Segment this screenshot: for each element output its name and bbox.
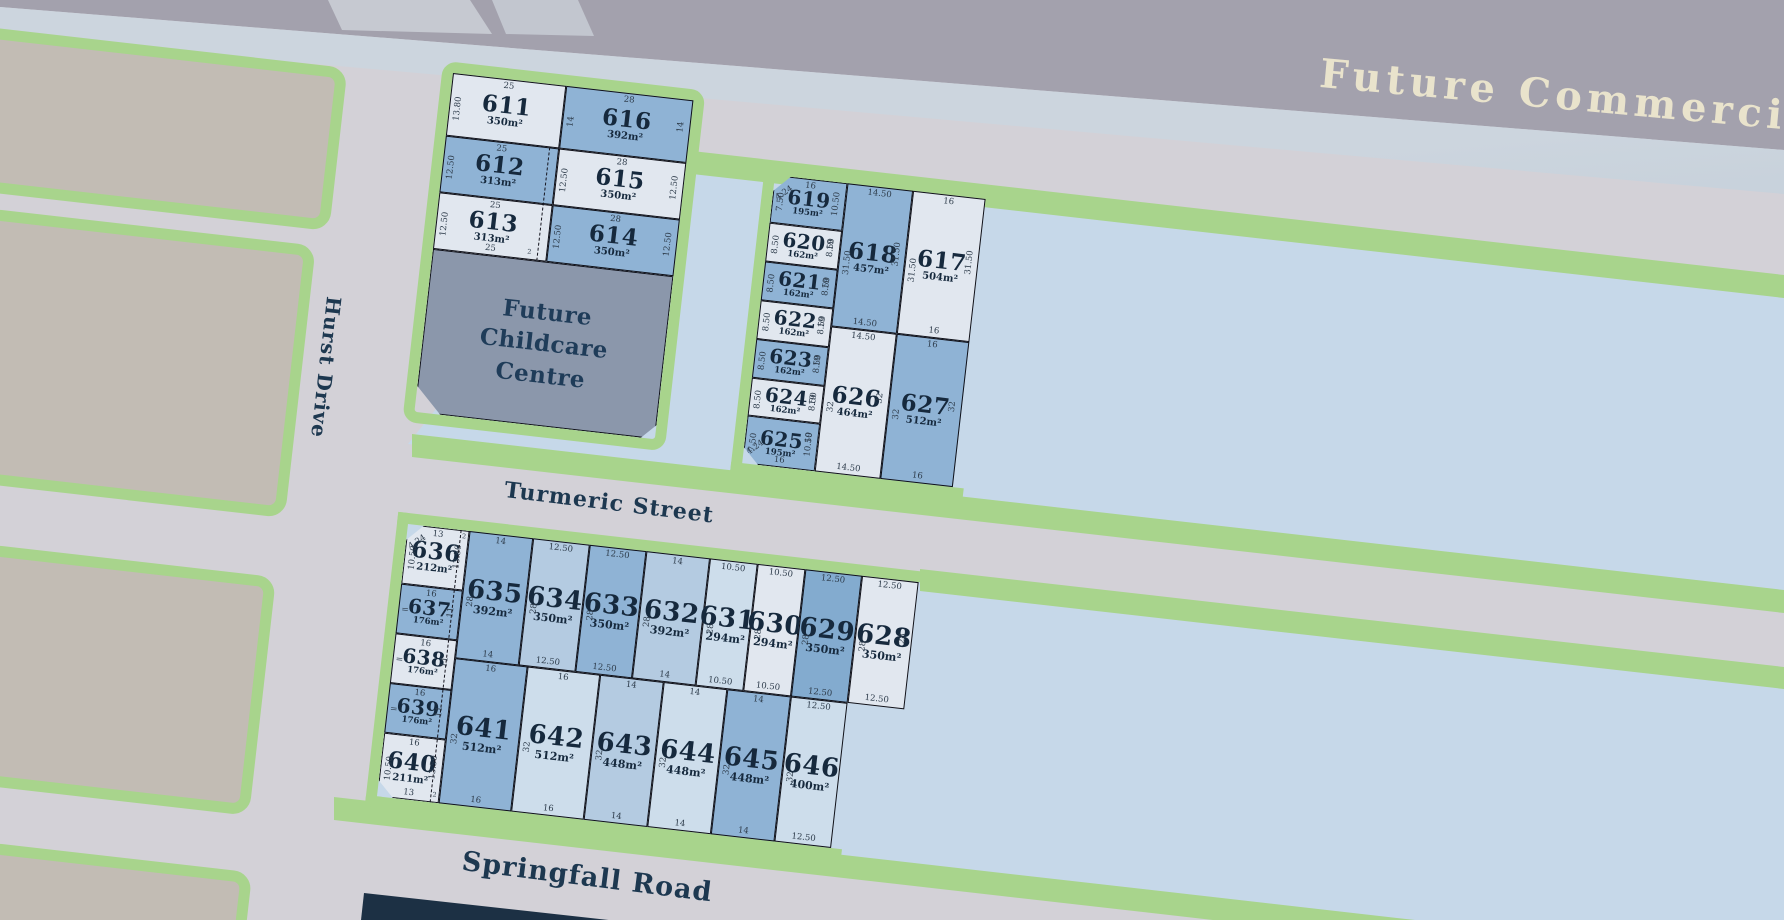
lot-dimension: 14 <box>495 537 507 547</box>
west-parcel-2 <box>0 208 316 518</box>
lot-area: 211m² <box>392 773 429 787</box>
lot-dimension: 16 <box>470 795 482 805</box>
lot-dimension: 13.80 <box>452 96 463 121</box>
lot-dimension: 28 <box>586 610 596 622</box>
lot-dimension: 32 <box>523 741 533 753</box>
lot-dimension: 13 <box>432 530 444 540</box>
equal-boundary-mark: = <box>389 704 398 715</box>
lot-area: 392m² <box>607 129 644 143</box>
lot-dimension: 28 <box>610 215 622 225</box>
lot-area: 448m² <box>602 757 642 772</box>
lot-dimension: 32 <box>659 757 669 769</box>
lot-dimension: 14 <box>482 650 494 660</box>
future-childcare-centre[interactable]: FutureChildcareCentre <box>414 249 673 439</box>
lot-dimension: 12.50 <box>439 212 450 237</box>
lot-dimension: 12.50 <box>877 581 902 592</box>
lot-dimension: 16 <box>773 455 785 465</box>
lot-dimension: 12.50 <box>820 574 845 585</box>
lot-dimension: 16 <box>557 673 569 683</box>
lot-dimension: 14 <box>738 826 750 836</box>
lot-dimension: 8.50 <box>753 389 764 409</box>
lot-dimension: 10.50 <box>768 568 793 579</box>
lot-dimension: 14 <box>566 115 576 127</box>
equal-boundary-mark: = <box>395 655 404 666</box>
equal-boundary-mark: = <box>401 605 410 616</box>
lot-dimension: 8.50 <box>766 274 777 294</box>
lot-dimension: 28 <box>706 623 716 635</box>
lot-area: 448m² <box>729 771 769 786</box>
lot-dimension: 16 <box>928 326 940 336</box>
lot-dimension: 14 <box>672 557 684 567</box>
lot-dimension: 14.50 <box>851 332 876 343</box>
lot-dimension: 19 <box>809 394 819 406</box>
lot-area: 350m² <box>600 189 637 203</box>
lot-dimension: 32 <box>786 771 796 783</box>
lot-dimension: 10.50 <box>831 191 842 216</box>
lot-dimension: 32 <box>826 401 836 413</box>
lot-dimension: 32 <box>948 401 958 413</box>
lot-dimension: 14.50 <box>867 189 892 200</box>
lot-area: 176m² <box>407 666 438 678</box>
lot-dimension: 28 <box>898 633 908 645</box>
lot-dimension: 25 <box>489 201 501 211</box>
lot-dimension: 12.50 <box>808 687 833 698</box>
lot-dimension: 14 <box>689 688 701 698</box>
lot-dimension: 10.50 <box>720 563 745 574</box>
lot-area: 457m² <box>852 263 889 277</box>
lot-dimension: 12.50 <box>669 175 680 200</box>
lot-dimension: 10.50 <box>708 676 733 687</box>
lot-dimension: 14 <box>610 811 622 821</box>
lot-dimension: 19 <box>805 432 815 444</box>
lot-area: 350m² <box>861 648 901 663</box>
lot-dimension: 28 <box>466 596 476 608</box>
lot-dimension: 16 <box>926 340 938 350</box>
lot-dimension: 31.50 <box>842 250 853 275</box>
lot-area: 350m² <box>805 642 845 657</box>
lot-dimension: 14 <box>676 122 686 134</box>
lot-dimension: 14.50 <box>852 317 877 328</box>
easement-width-label: 2 <box>462 532 467 540</box>
lot-dimension: 10.50 <box>755 681 780 692</box>
lot-area: 176m² <box>401 715 432 727</box>
lot-area: 162m² <box>769 405 800 417</box>
lot-dimension: 12.50 <box>662 232 673 257</box>
lot-area: 162m² <box>778 328 809 340</box>
lot-dimension: 12.50 <box>592 662 617 673</box>
lot-dimension: 12.50 <box>535 656 560 667</box>
lot-dimension: 12.50 <box>446 155 457 180</box>
lot-dimension: 12.50 <box>548 543 573 554</box>
lot-area: 195m² <box>792 207 823 219</box>
lot-dimension: 12.50 <box>605 550 630 561</box>
lot-dimension: 12.50 <box>864 693 889 704</box>
lot-dimension: 32 <box>876 392 886 404</box>
lot-dimension: 14 <box>674 819 686 829</box>
lot-dimension: 25 <box>503 82 515 92</box>
lot-area: 512m² <box>534 749 574 764</box>
lot-dimension: 14.50 <box>836 462 861 473</box>
lot-dimension: 16 <box>912 471 924 481</box>
west-parcel-3 <box>0 544 276 816</box>
west-parcel-4 <box>0 842 252 920</box>
lot-dimension: 8.50 <box>762 313 773 333</box>
lot-dimension: 25 <box>496 144 508 154</box>
lot-dimension: 19 <box>827 239 837 251</box>
lot-dimension: 31.50 <box>891 242 902 267</box>
lot-area: 350m² <box>533 611 573 626</box>
lot-dimension: 16 <box>420 639 432 649</box>
lot-area: 162m² <box>782 289 813 301</box>
lot-area: 350m² <box>589 617 629 632</box>
lot-dimension: 32 <box>595 750 605 762</box>
lot-dimension: 14 <box>659 670 671 680</box>
masterplan-map: 611350m²2513.80616392m²281414612313m²251… <box>0 0 1784 920</box>
lot-dimension: 16 <box>485 665 497 675</box>
lot-dimension: 32 <box>892 409 902 421</box>
lot-area: 162m² <box>774 366 805 378</box>
lot-dimension: 14 <box>752 695 764 705</box>
lot-dimension: 28 <box>802 634 812 646</box>
lot-dimension: 16 <box>414 689 426 699</box>
lot-dimension: 8.50 <box>771 235 782 255</box>
lot-area: 313m² <box>480 175 517 189</box>
lot-dimension: 28 <box>858 641 868 653</box>
lot-dimension: 19 <box>813 355 823 367</box>
lot-dimension: 16 <box>408 739 420 749</box>
lot-area: 512m² <box>461 741 501 756</box>
street-label-hurst-drive: Hurst Drive <box>306 295 346 439</box>
lot-area: 464m² <box>836 408 873 422</box>
lot-dimension: 19 <box>822 278 832 290</box>
lot-dimension: 16 <box>425 589 437 599</box>
lot-dimension: 12.50 <box>806 701 831 712</box>
lot-dimension: 19 <box>818 316 828 328</box>
lot-dimension: 28 <box>529 603 539 615</box>
lot-dimension: 32 <box>450 733 460 745</box>
lot-dimension: 12.50 <box>791 832 816 843</box>
lot-area: 400m² <box>789 778 829 793</box>
lot-dimension: 12.50 <box>559 168 570 193</box>
lot-dimension: 14 <box>625 681 637 691</box>
lot-dimension: 16 <box>943 197 955 207</box>
lot-dimension: 28 <box>616 158 628 168</box>
lot-dimension: 12.50 <box>552 225 563 250</box>
lot-dimension: 28 <box>754 629 764 641</box>
lot-area: 392m² <box>472 604 512 619</box>
lot-area: 350m² <box>593 246 630 260</box>
lot-dimension: 13 <box>403 788 415 798</box>
lot-area: 176m² <box>412 616 443 628</box>
lot-area: 512m² <box>905 415 942 429</box>
lot-dimension: 28 <box>643 616 653 628</box>
lot-dimension: 16 <box>805 181 817 191</box>
lot-dimension: 31.50 <box>907 258 918 283</box>
lot-dimension: 25 <box>485 243 497 253</box>
lot-area: 350m² <box>486 116 523 130</box>
lot-dimension: 8.50 <box>758 351 769 371</box>
lot-dimension: 31.50 <box>964 250 975 275</box>
lot-dimension: 16 <box>542 804 554 814</box>
lot-area: 162m² <box>787 250 818 262</box>
lot-area: 504m² <box>921 271 958 285</box>
lot-dimension: 32 <box>722 764 732 776</box>
lot-area: 212m² <box>416 562 453 576</box>
lot-area: 392m² <box>649 624 689 639</box>
lot-area: 448m² <box>666 764 706 779</box>
lot-dimension: 28 <box>623 96 635 106</box>
